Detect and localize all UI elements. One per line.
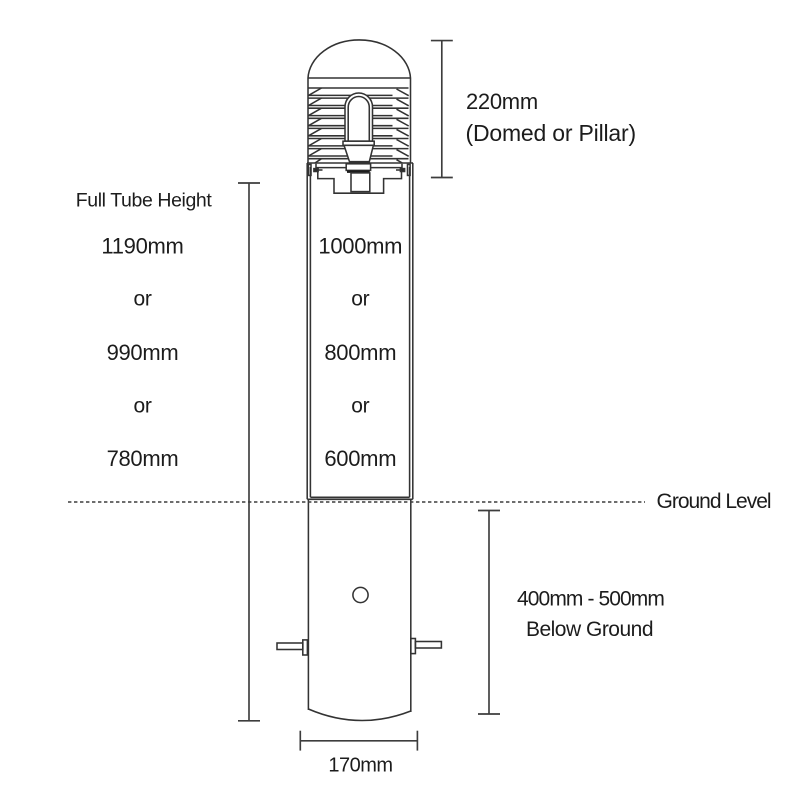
svg-text:(Domed or Pillar): (Domed or Pillar)	[466, 120, 636, 146]
svg-text:1000mm: 1000mm	[318, 234, 402, 259]
svg-text:1190mm: 1190mm	[101, 234, 183, 259]
svg-text:Ground Level: Ground Level	[657, 490, 771, 513]
svg-text:600mm: 600mm	[324, 446, 396, 471]
svg-text:or: or	[133, 288, 151, 311]
svg-text:or: or	[351, 288, 369, 311]
svg-text:Full Tube Height: Full Tube Height	[76, 189, 213, 211]
svg-text:or: or	[133, 395, 151, 418]
svg-text:800mm: 800mm	[324, 340, 396, 365]
svg-text:or: or	[351, 395, 369, 418]
svg-text:220mm: 220mm	[466, 89, 538, 114]
svg-text:170mm: 170mm	[328, 754, 392, 776]
svg-text:Below Ground: Below Ground	[526, 618, 653, 641]
svg-text:400mm - 500mm: 400mm - 500mm	[517, 587, 664, 610]
svg-text:990mm: 990mm	[107, 340, 179, 365]
svg-text:780mm: 780mm	[107, 446, 179, 471]
